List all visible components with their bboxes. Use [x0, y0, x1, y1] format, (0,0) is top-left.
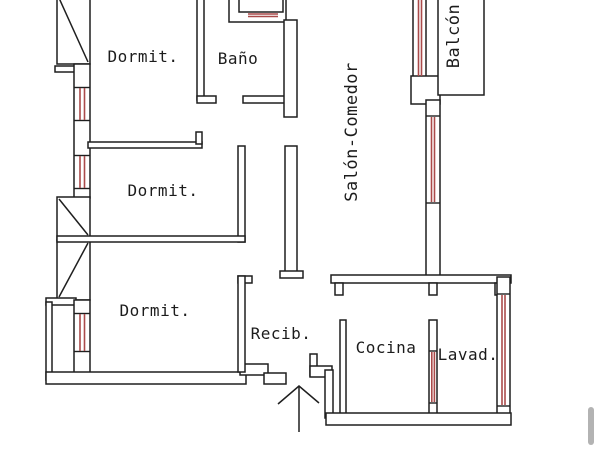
scrollbar-thumb[interactable]: [588, 407, 594, 445]
floor-plan: Dormit. Baño Dormit. Dormit. Recib. Coci…: [0, 0, 600, 450]
room-label-cocina: Cocina: [356, 338, 417, 357]
room-label-dormit3: Dormit.: [120, 301, 191, 320]
room-label-lavad: Lavad.: [438, 345, 499, 364]
room-label-salon-comedor: Salón-Comedor: [342, 62, 362, 202]
floor-plan-page: Dormit. Baño Dormit. Dormit. Recib. Coci…: [0, 0, 600, 450]
room-label-balcon: Balcón: [444, 4, 464, 68]
entrance-arrow-icon: [278, 386, 319, 432]
room-label-bano: Baño: [218, 49, 259, 68]
room-label-recib: Recib.: [251, 324, 312, 343]
room-label-dormit1: Dormit.: [108, 47, 179, 66]
room-label-dormit2: Dormit.: [128, 181, 199, 200]
